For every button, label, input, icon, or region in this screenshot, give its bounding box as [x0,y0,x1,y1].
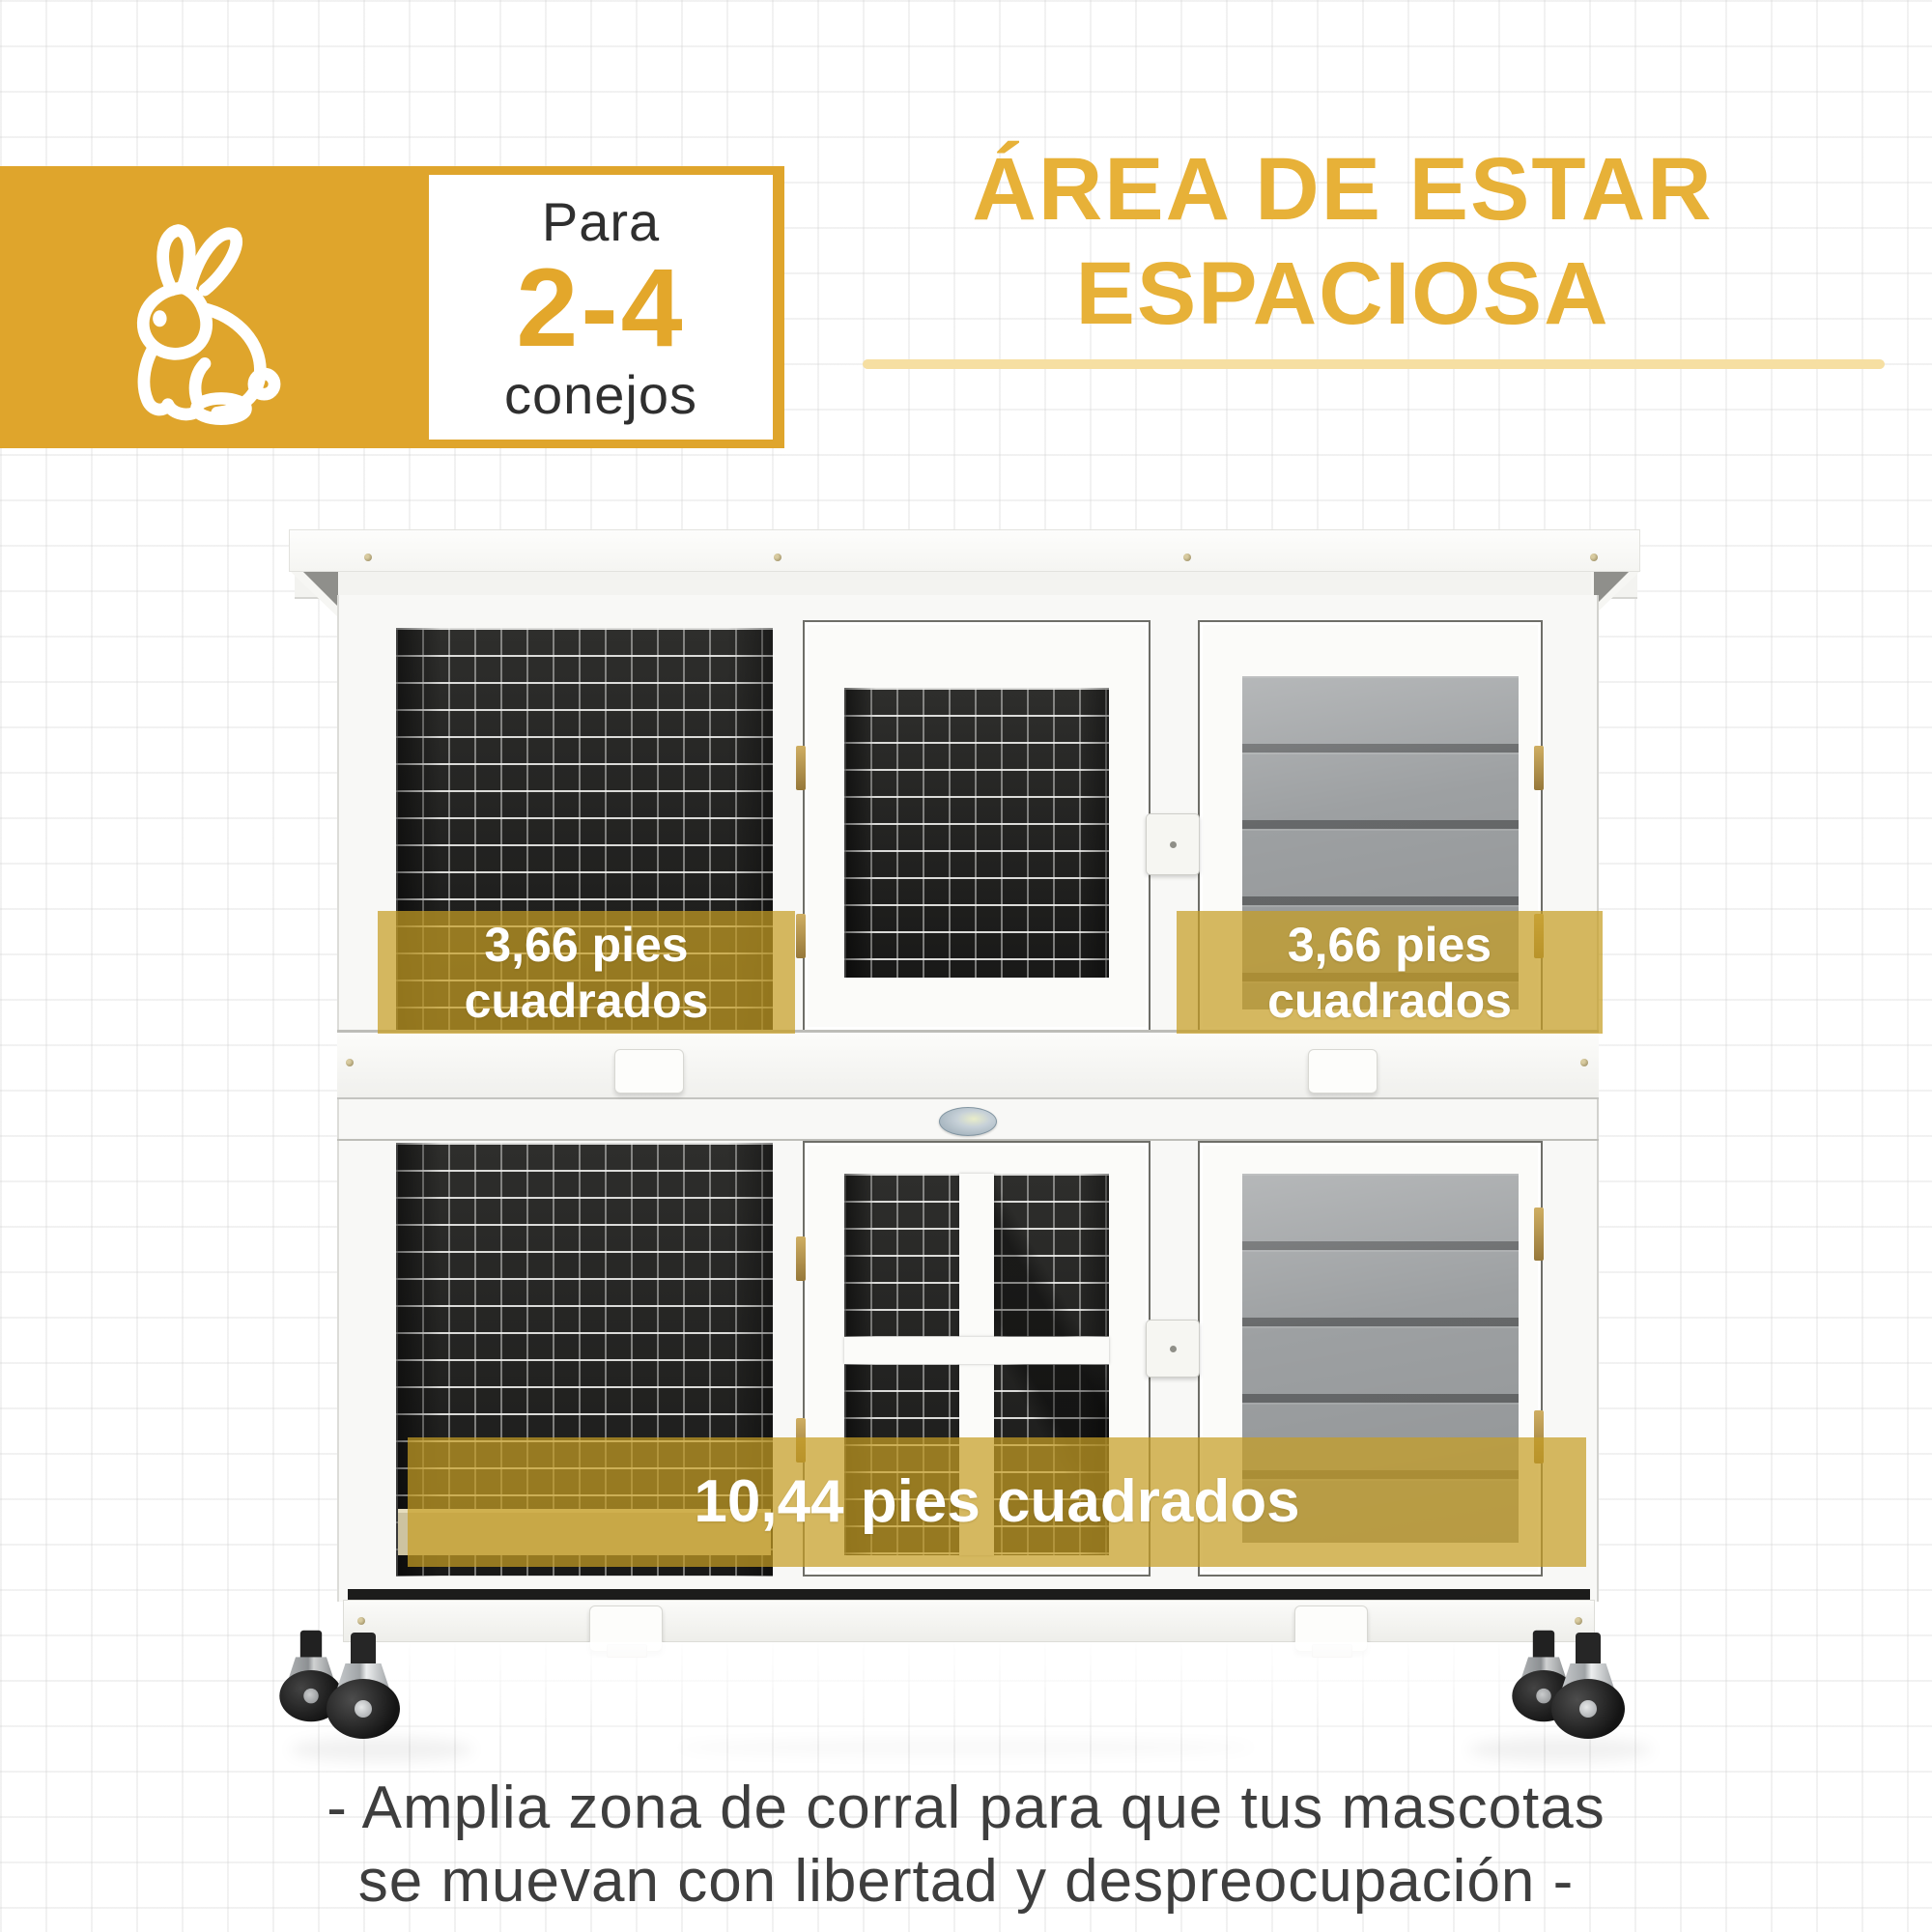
hinge [1534,1207,1544,1261]
divider-screw-right [1580,1059,1588,1066]
divider-screw-left [346,1059,354,1066]
base-screw-left [357,1617,365,1625]
hinge [796,1236,806,1281]
base-apron [343,1600,1595,1642]
area-label-line1: 3,66 pies [1288,917,1492,973]
roof-fascia [289,529,1640,572]
caption: - Amplia zona de corral para que tus mas… [97,1772,1835,1918]
wheel-reflection-right [1468,1737,1652,1762]
tray-handle-left [614,1049,684,1094]
hinge [1534,746,1544,790]
floor-fade [348,1642,1590,1748]
lower-door-latch [1146,1320,1200,1378]
door-mid-rail [844,1337,1109,1364]
roof-screw [364,554,372,561]
upper-center-door-mesh [844,688,1109,978]
area-band-lower: 10,44 pies cuadrados [408,1437,1586,1567]
headline: ÁREA DE ESTAR ESPACIOSA [792,137,1893,346]
hinge [796,914,806,958]
roof-screw [774,554,781,561]
base-screw-right [1575,1617,1582,1625]
divider-tray-board [337,1033,1599,1099]
capacity-badge-panel: Para 2-4 conejos [429,175,773,440]
area-band-upper-left: 3,66 pies cuadrados [378,911,795,1034]
capacity-suffix: conejos [504,363,697,426]
caster-front-left [305,1633,421,1739]
area-label-line1: 3,66 pies [484,917,688,973]
caption-line1: - Amplia zona de corral para que tus mas… [97,1772,1835,1845]
base-black-strip [348,1589,1590,1600]
hinge [796,746,806,790]
page: Para 2-4 conejos ÁREA DE ESTAR ESPACIOSA [0,0,1932,1932]
hutch-shadow [676,1739,1256,1756]
headline-underline [863,359,1885,369]
wheel-reflection-left [290,1737,473,1762]
capacity-badge: Para 2-4 conejos [0,166,784,448]
roof-screw [1590,554,1598,561]
caster-front-right [1530,1633,1646,1739]
capacity-prefix: Para [542,190,660,253]
headline-line2: ESPACIOSA [792,241,1893,346]
brand-oval-badge [939,1107,997,1136]
area-label-text: 10,44 pies cuadrados [694,1470,1299,1534]
area-band-upper-right: 3,66 pies cuadrados [1177,911,1603,1034]
caption-line2: se muevan con libertad y despreocupación… [97,1845,1835,1918]
capacity-value: 2-4 [516,260,685,356]
headline-line1: ÁREA DE ESTAR [792,137,1893,241]
area-label-line2: cuadrados [465,973,709,1029]
roof-screw [1183,554,1191,561]
rabbit-icon [79,220,330,425]
tray-handle-right [1308,1049,1378,1094]
area-label-line2: cuadrados [1267,973,1512,1029]
upper-door-latch [1146,813,1200,875]
